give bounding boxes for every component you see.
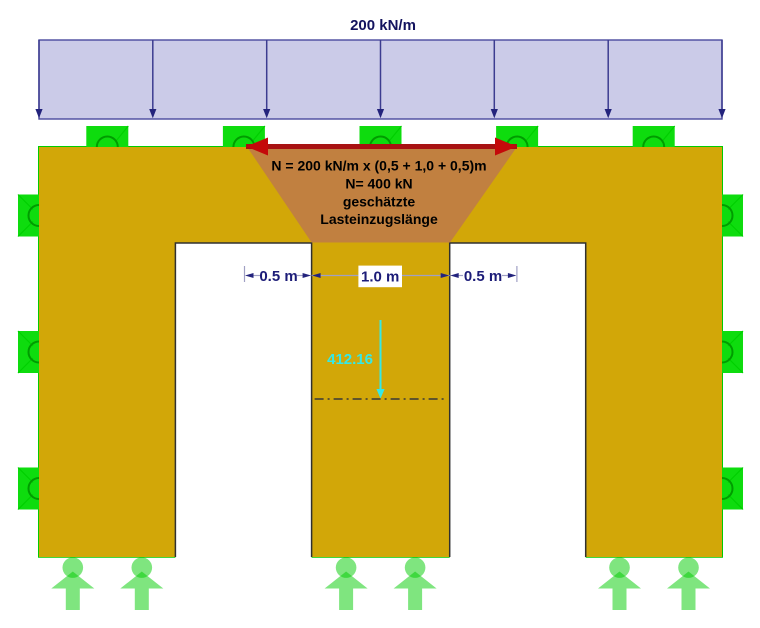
svg-text:geschätzte: geschätzte bbox=[343, 194, 416, 210]
svg-text:N = 200 kN/m x (0,5 + 1,0 + 0,: N = 200 kN/m x (0,5 + 1,0 + 0,5)m bbox=[271, 158, 486, 174]
svg-text:412.16: 412.16 bbox=[327, 351, 373, 368]
svg-text:1.0 m: 1.0 m bbox=[361, 269, 399, 286]
svg-text:0.5 m: 0.5 m bbox=[259, 268, 297, 285]
svg-text:N= 400 kN: N= 400 kN bbox=[345, 176, 412, 192]
svg-text:Lasteinzugslänge: Lasteinzugslänge bbox=[320, 211, 438, 227]
svg-text:0.5 m: 0.5 m bbox=[464, 268, 502, 285]
svg-text:200 kN/m: 200 kN/m bbox=[350, 17, 416, 34]
